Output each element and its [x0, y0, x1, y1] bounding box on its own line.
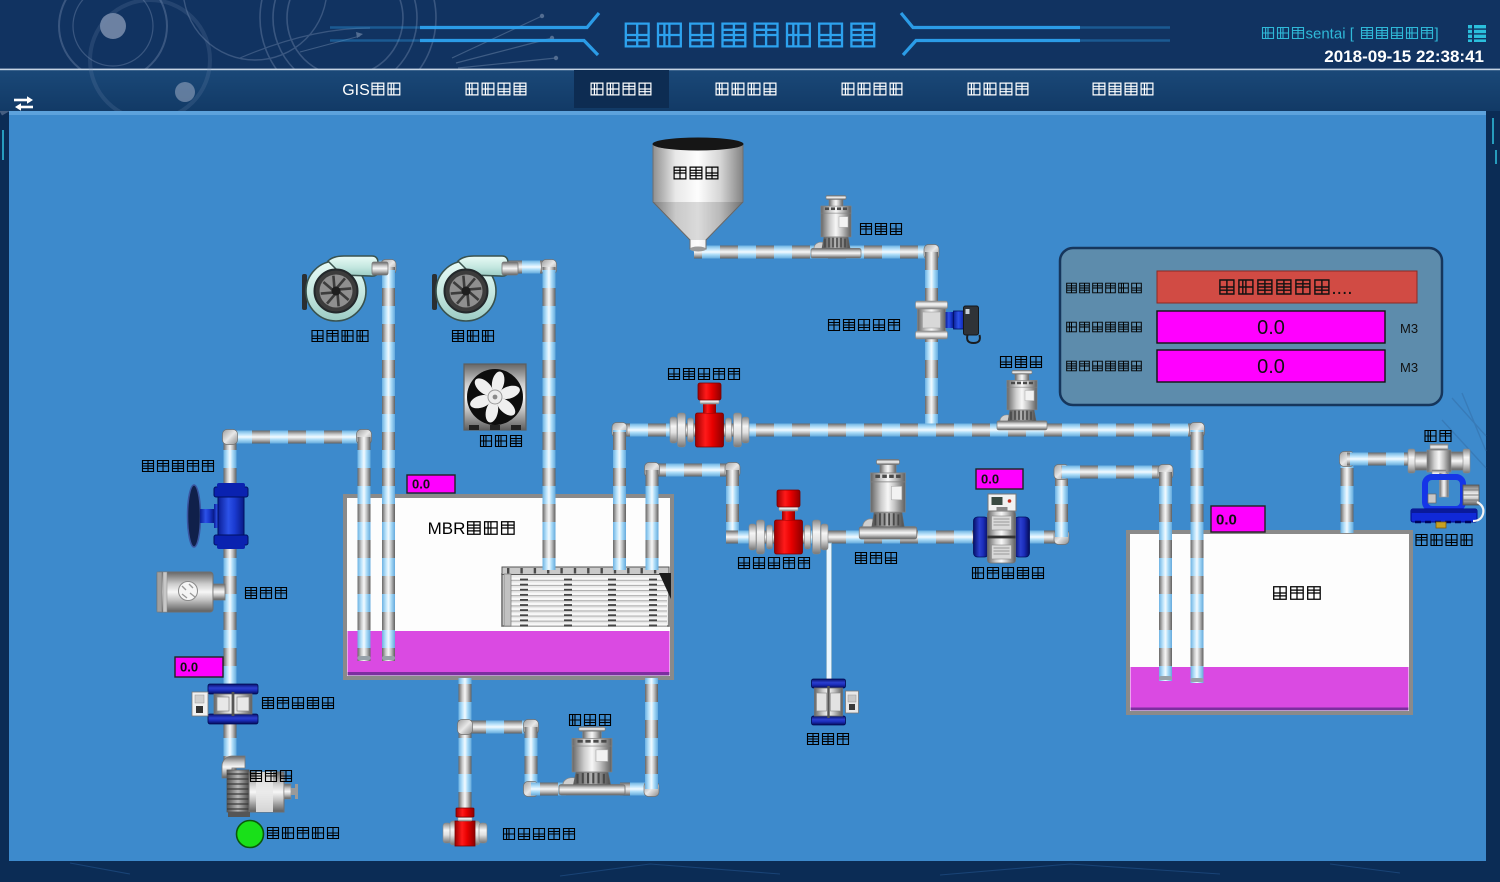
svg-text:M3: M3 [1400, 360, 1418, 375]
svg-text:0.0: 0.0 [1257, 317, 1285, 339]
svg-text:sentai [: sentai [ [1306, 25, 1355, 42]
svg-text:]: ] [1435, 25, 1439, 42]
svg-text:M3: M3 [1400, 321, 1418, 336]
svg-text:MBR: MBR [428, 519, 466, 538]
svg-text:GIS: GIS [342, 82, 370, 99]
svg-text:....: .... [1331, 278, 1352, 299]
svg-text:0.0: 0.0 [1257, 356, 1285, 378]
svg-text:0.0: 0.0 [1216, 511, 1237, 528]
svg-text:2018-09-15 22:38:41: 2018-09-15 22:38:41 [1324, 47, 1484, 66]
svg-text:0.0: 0.0 [412, 477, 430, 492]
svg-text:0.0: 0.0 [981, 472, 999, 487]
svg-text:0.0: 0.0 [180, 660, 198, 675]
